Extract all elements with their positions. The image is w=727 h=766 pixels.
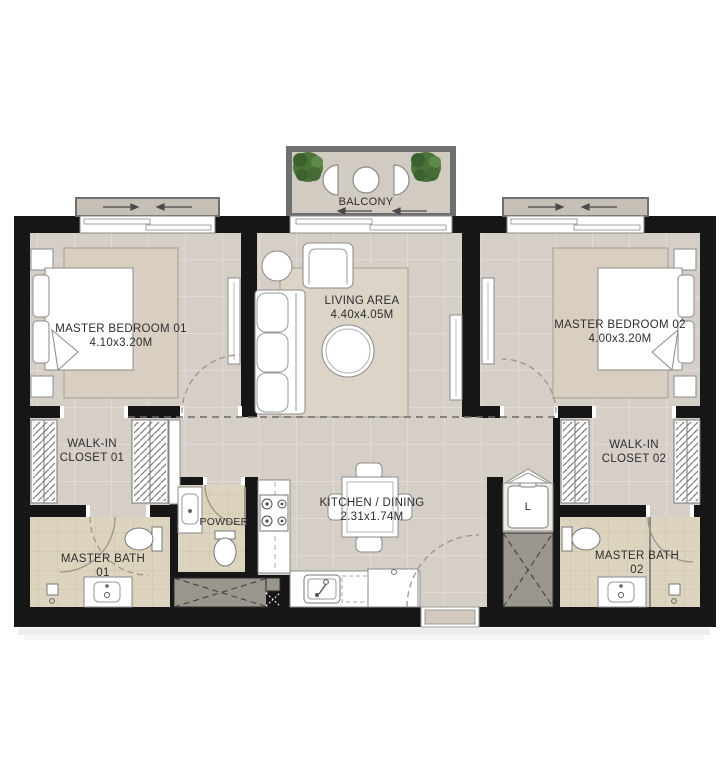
plant-symbol [411,152,441,182]
sofa-symbol [255,290,305,414]
coffee-table-symbol [322,325,374,377]
master-bath-02-line1: MASTER BATH [595,549,679,563]
side-table-symbol [262,251,292,281]
room-label-walk-in-closet-02: WALK-IN CLOSET 02 [602,438,667,466]
kitchen-sink-symbol [304,575,340,603]
balcony-table-symbol [353,167,379,193]
walk-in-closet-02-line1: WALK-IN [602,438,667,452]
walk-in-closet-01-line2: CLOSET 01 [60,451,125,465]
entry-door-symbol [421,607,479,627]
bath2-toilet-symbol [562,527,600,551]
plant-symbol [293,152,323,182]
bath2-vanity-symbol [598,577,646,607]
powder-toilet-symbol [214,531,236,566]
armchair-symbol [303,243,353,288]
master-bath-02-line2: 02 [595,563,679,577]
balcony-name: BALCONY [339,195,394,209]
stove-symbol [260,495,288,531]
shaft-symbol [174,578,268,607]
room-label-master-bedroom-02: MASTER BEDROOM 02 4.00x3.20M [554,318,686,346]
floor-plan-drawing [0,0,727,766]
living-area-dimensions: 4.40x4.05M [325,308,400,322]
living-area-name: LIVING AREA [325,294,400,308]
window-symbol [503,198,648,233]
bath1-vanity-symbol [84,577,132,607]
room-label-powder: POWDER [199,515,248,529]
room-label-kitchen-dining: KITCHEN / DINING 2.31x1.74M [319,496,424,524]
plan-shadow [18,628,710,635]
master-bath-01-line1: MASTER BATH [61,552,145,566]
master-bedroom-02-dimensions: 4.00x3.20M [554,332,686,346]
powder-name: POWDER [199,515,248,529]
room-label-living-area: LIVING AREA 4.40x4.05M [325,294,400,322]
shaft-symbol [503,533,553,607]
kitchen-dining-name: KITCHEN / DINING [319,496,424,510]
room-label-master-bedroom-01: MASTER BEDROOM 01 4.10x3.20M [55,322,187,350]
powder-vanity-symbol [178,487,202,533]
room-label-master-bath-01: MASTER BATH 01 [61,552,145,580]
master-bedroom-01-dimensions: 4.10x3.20M [55,336,187,350]
walk-in-closet-02-line2: CLOSET 02 [602,452,667,466]
master-bedroom-02-name: MASTER BEDROOM 02 [554,318,686,332]
floor-plan: BALCONY MASTER BEDROOM 01 4.10x3.20M LIV… [0,0,727,766]
room-label-balcony: BALCONY [339,195,394,209]
plan-shadow [24,635,704,640]
fridge-symbol [368,569,418,607]
room-label-walk-in-closet-01: WALK-IN CLOSET 01 [60,437,125,465]
balcony-door-symbol [290,216,452,233]
kitchen-dining-dimensions: 2.31x1.74M [319,510,424,524]
room-label-laundry: L [525,500,531,514]
laundry-name: L [525,500,531,514]
master-bedroom-01-name: MASTER BEDROOM 01 [55,322,187,336]
room-label-master-bath-02: MASTER BATH 02 [595,549,679,577]
walk-in-closet-01-line1: WALK-IN [60,437,125,451]
master-bath-01-line2: 01 [61,566,145,580]
window-symbol [76,198,219,233]
bath1-toilet-symbol [125,527,162,551]
